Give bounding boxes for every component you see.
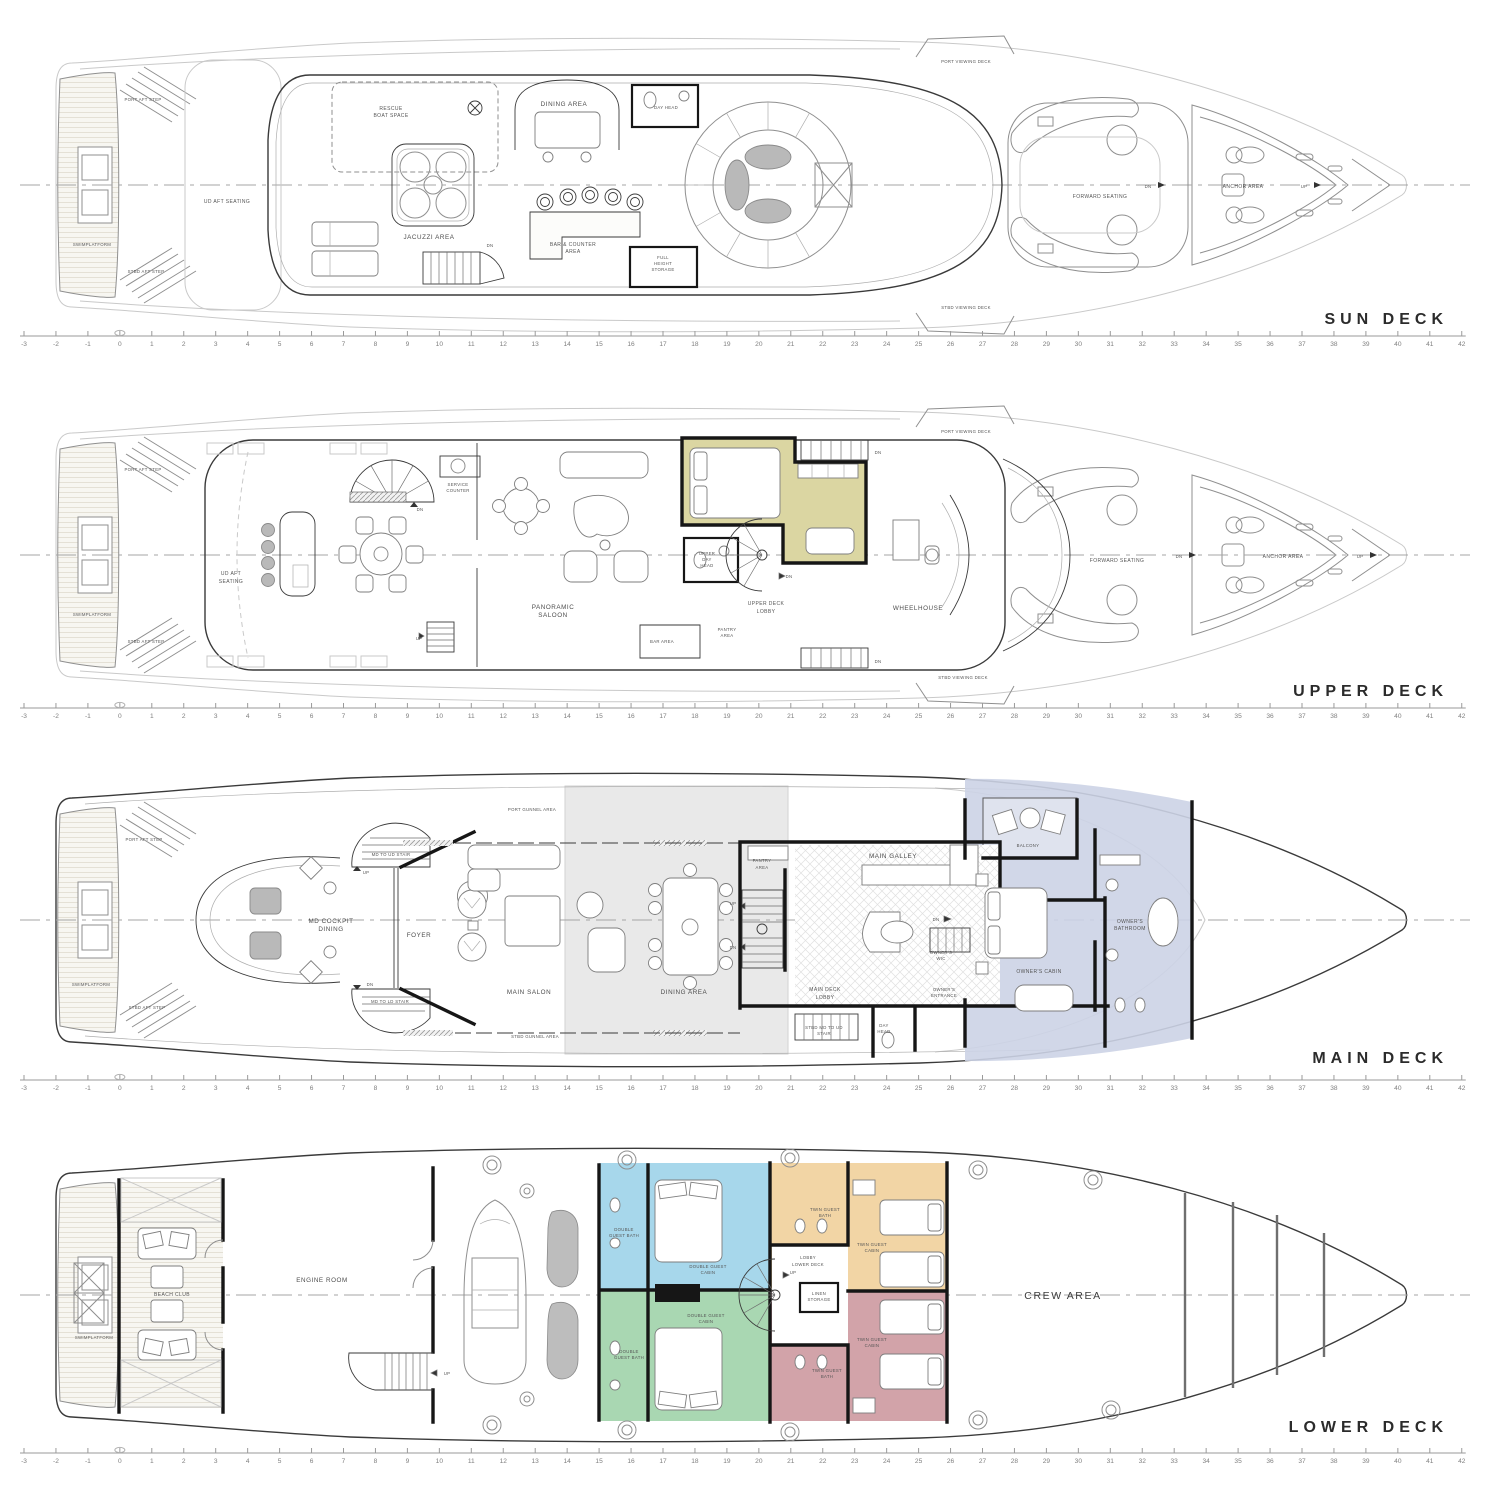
label-upper-deck-lobby-1: UPPER DECK bbox=[748, 601, 785, 607]
label-stbd-gunnel: STBD GUNNEL AREA bbox=[511, 1034, 559, 1039]
label-main-galley: MAIN GALLEY bbox=[869, 853, 917, 860]
sun-stairs-dn bbox=[423, 252, 504, 284]
ruler-number: 40 bbox=[1394, 1085, 1402, 1092]
sun-deck-plan: PORT AFT STEP SWIMPLATFORM STBD AFT STEP… bbox=[20, 36, 1470, 334]
label-up-aft: UP bbox=[363, 870, 370, 875]
main-deck-plan: PORT AFT STEP SWIMPLATFORM STBD AFT STEP… bbox=[20, 773, 1470, 1067]
ruler-number: 15 bbox=[595, 1458, 603, 1465]
label-stbd-aft-step: STBD AFT STEP bbox=[129, 1005, 166, 1010]
label-dn-aft: DN bbox=[367, 982, 374, 987]
label-stbd-viewing-deck: STBD VIEWING DECK bbox=[938, 675, 988, 680]
label-upper-deck-lobby-2: LOBBY bbox=[757, 609, 776, 615]
ruler-number: 25 bbox=[915, 1458, 923, 1465]
ruler-number: 19 bbox=[723, 713, 731, 720]
ruler-number: 28 bbox=[1011, 1085, 1019, 1092]
ruler-number: 12 bbox=[500, 1458, 508, 1465]
ruler-number: 28 bbox=[1011, 1458, 1019, 1465]
ruler-number: 20 bbox=[755, 1458, 763, 1465]
engine-room-stair bbox=[349, 1353, 437, 1390]
ruler-number: 15 bbox=[595, 341, 603, 348]
ruler-number: 0 bbox=[118, 341, 122, 348]
ruler-number: 36 bbox=[1266, 713, 1274, 720]
label-bow-up: UP bbox=[1357, 554, 1364, 559]
ruler-number: -2 bbox=[53, 713, 59, 720]
ruler-number: -2 bbox=[53, 341, 59, 348]
crane-icon bbox=[468, 101, 482, 115]
ruler-number: 25 bbox=[915, 1085, 923, 1092]
label-up: UP bbox=[1301, 184, 1308, 189]
label-full-height-3: STORAGE bbox=[651, 267, 674, 272]
ruler-number: 30 bbox=[1075, 341, 1083, 348]
ud-up-stair bbox=[419, 622, 454, 652]
ruler-number: 24 bbox=[883, 713, 891, 720]
ud-stair-dn bbox=[350, 460, 434, 507]
ruler-number: 5 bbox=[278, 1458, 282, 1465]
ruler-number: 31 bbox=[1107, 1458, 1115, 1465]
ruler-number: 36 bbox=[1266, 1085, 1274, 1092]
lower-lobby bbox=[772, 1245, 848, 1345]
ruler-number: 19 bbox=[723, 1458, 731, 1465]
ruler-number: -1 bbox=[85, 713, 91, 720]
ruler-number: -3 bbox=[21, 341, 27, 348]
ruler-number: 13 bbox=[532, 1085, 540, 1092]
ruler-number: 41 bbox=[1426, 341, 1434, 348]
ruler-number: 21 bbox=[787, 1085, 795, 1092]
label-twin-cabin-red-2: CABIN bbox=[865, 1343, 880, 1348]
ruler-number: 33 bbox=[1171, 713, 1179, 720]
scale-ruler-upper: -3-2-10123456789101112131415161718192021… bbox=[20, 702, 1466, 720]
ruler-number: 8 bbox=[374, 1085, 378, 1092]
label-dn-galley: DN bbox=[933, 917, 940, 922]
ruler-number: 41 bbox=[1426, 1458, 1434, 1465]
ruler-number: 7 bbox=[342, 713, 346, 720]
label-anchor-area: ANCHOR AREA bbox=[1223, 184, 1264, 190]
label-lobby-ld-2: LOWER DECK bbox=[792, 1262, 824, 1267]
ruler-number: 17 bbox=[659, 713, 667, 720]
ud-aft-bar bbox=[262, 512, 316, 596]
ruler-number: 22 bbox=[819, 713, 827, 720]
label-swimplatform: SWIMPLATFORM bbox=[75, 1335, 113, 1340]
label-md-cockpit-2: DINING bbox=[318, 926, 343, 933]
scale-ruler-sun: -3-2-10123456789101112131415161718192021… bbox=[20, 330, 1466, 348]
label-twin-bath-tan-1: TWIN GUEST bbox=[810, 1207, 840, 1212]
ruler-number: 34 bbox=[1202, 341, 1210, 348]
ruler-number: 21 bbox=[787, 1458, 795, 1465]
label-panoramic-saloon-2: SALOON bbox=[538, 612, 568, 619]
ruler-number: 40 bbox=[1394, 1458, 1402, 1465]
ruler-number: 13 bbox=[532, 1458, 540, 1465]
label-full-height-1: FULL bbox=[657, 255, 669, 260]
label-anchor-area: ANCHOR AREA bbox=[1263, 554, 1304, 560]
ruler-number: 10 bbox=[436, 341, 444, 348]
ruler-number: 23 bbox=[851, 1085, 859, 1092]
ruler-number: 20 bbox=[755, 713, 763, 720]
label-linen-2: STORAGE bbox=[807, 1297, 830, 1302]
ruler-number: 12 bbox=[500, 713, 508, 720]
label-service-counter-2: COUNTER bbox=[446, 488, 469, 493]
ruler-number: 23 bbox=[851, 1458, 859, 1465]
ruler-number: 39 bbox=[1362, 713, 1370, 720]
scale-ruler-main: -3-2-10123456789101112131415161718192021… bbox=[20, 1074, 1466, 1092]
ruler-number: 15 bbox=[595, 1085, 603, 1092]
ruler-number: 8 bbox=[374, 1458, 378, 1465]
ruler-number: 7 bbox=[342, 341, 346, 348]
ruler-number: 6 bbox=[310, 713, 314, 720]
label-twin-bath-red-2: BATH bbox=[821, 1374, 833, 1379]
ruler-number: 34 bbox=[1202, 1085, 1210, 1092]
ruler-number: 20 bbox=[755, 1085, 763, 1092]
label-day-head-1: DAY bbox=[879, 1023, 888, 1028]
ruler-number: 18 bbox=[691, 341, 699, 348]
ruler-number: -1 bbox=[85, 1458, 91, 1465]
ruler-number: 9 bbox=[406, 1458, 410, 1465]
ruler-number: 32 bbox=[1139, 341, 1147, 348]
label-dining-area: DINING AREA bbox=[541, 101, 588, 108]
ruler-number: 21 bbox=[787, 713, 795, 720]
label-owners-entrance-1: OWNER'S bbox=[933, 987, 955, 992]
ruler-number: 22 bbox=[819, 1458, 827, 1465]
ruler-number: 16 bbox=[627, 1458, 635, 1465]
ruler-number: 0 bbox=[118, 713, 122, 720]
label-beach-club: BEACH CLUB bbox=[154, 1292, 190, 1298]
label-stbd-stair-2: STAIR bbox=[817, 1031, 831, 1036]
ruler-number: 21 bbox=[787, 341, 795, 348]
ruler-number: 17 bbox=[659, 1458, 667, 1465]
label-forward-seating: FORWARD SEATING bbox=[1073, 194, 1128, 200]
label-bar-counter-1: BAR & COUNTER bbox=[550, 242, 596, 248]
label-pantry-area-2: AREA bbox=[721, 633, 734, 638]
ruler-number: 14 bbox=[563, 341, 571, 348]
label-main-salon: MAIN SALON bbox=[507, 989, 551, 996]
ruler-number: 2 bbox=[182, 341, 186, 348]
ruler-number: 12 bbox=[500, 1085, 508, 1092]
label-up-mid: UP bbox=[730, 901, 737, 906]
ruler-number: 14 bbox=[563, 713, 571, 720]
ruler-number: 33 bbox=[1171, 341, 1179, 348]
label-stair-dn: DN bbox=[417, 507, 424, 512]
label-day-head: DAY HEAD bbox=[654, 105, 678, 110]
ruler-number: 26 bbox=[947, 341, 955, 348]
ruler-number: 13 bbox=[532, 713, 540, 720]
label-owners-wic-2: WIC bbox=[936, 956, 945, 961]
ruler-number: 6 bbox=[310, 1085, 314, 1092]
ruler-number: 10 bbox=[436, 1085, 444, 1092]
label-spiral-dn: DN bbox=[786, 574, 793, 579]
label-ud-aft-seating-1: UD AFT bbox=[221, 571, 241, 577]
label-twin-cabin-red-1: TWIN GUEST bbox=[857, 1337, 887, 1342]
ruler-number: 19 bbox=[723, 1085, 731, 1092]
ruler-number: 4 bbox=[246, 1085, 250, 1092]
captain-cabin bbox=[682, 438, 866, 563]
ruler-number: 37 bbox=[1298, 1085, 1306, 1092]
ruler-number: 2 bbox=[182, 713, 186, 720]
label-dbl-cabin-green-1: DOUBLE GUEST bbox=[687, 1313, 724, 1318]
ruler-number: 38 bbox=[1330, 341, 1338, 348]
ruler-number: 29 bbox=[1043, 713, 1051, 720]
label-owners-cabin: OWNER'S CABIN bbox=[1016, 969, 1061, 975]
ruler-number: 28 bbox=[1011, 341, 1019, 348]
ruler-number: 30 bbox=[1075, 1085, 1083, 1092]
ruler-number: 9 bbox=[406, 341, 410, 348]
ruler-number: 29 bbox=[1043, 1085, 1051, 1092]
label-balcony: BALCONY bbox=[1017, 843, 1040, 848]
ruler-number: -1 bbox=[85, 1085, 91, 1092]
ruler-number: 16 bbox=[627, 1085, 635, 1092]
ruler-number: 5 bbox=[278, 341, 282, 348]
label-dbl-cabin-blue-2: CABIN bbox=[701, 1270, 716, 1275]
ruler-number: 39 bbox=[1362, 1085, 1370, 1092]
ruler-number: 35 bbox=[1234, 1085, 1242, 1092]
ruler-number: 32 bbox=[1139, 713, 1147, 720]
label-twin-bath-tan-2: BATH bbox=[819, 1213, 831, 1218]
ruler-number: 14 bbox=[563, 1458, 571, 1465]
ruler-number: 1 bbox=[150, 341, 154, 348]
label-pantry-2: AREA bbox=[756, 865, 769, 870]
ga-plan-sheet: PORT AFT STEP SWIMPLATFORM STBD AFT STEP… bbox=[0, 0, 1500, 1494]
ruler-number: 18 bbox=[691, 713, 699, 720]
ruler-number: 10 bbox=[436, 713, 444, 720]
ruler-number: 3 bbox=[214, 1458, 218, 1465]
ruler-number: 3 bbox=[214, 341, 218, 348]
label-pantry-area-1: PANTRY bbox=[718, 627, 737, 632]
ruler-number: 10 bbox=[436, 1458, 444, 1465]
label-dn-mid: DN bbox=[730, 945, 737, 950]
ruler-number: 30 bbox=[1075, 713, 1083, 720]
ruler-number: 7 bbox=[342, 1458, 346, 1465]
label-stbd-stair-1: STBD MD TO UD bbox=[805, 1025, 843, 1030]
ruler-number: 39 bbox=[1362, 341, 1370, 348]
deck-title-sun: SUN DECK bbox=[1324, 311, 1448, 328]
deck-plan-canvas: PORT AFT STEP SWIMPLATFORM STBD AFT STEP… bbox=[0, 0, 1500, 1494]
wall-block bbox=[655, 1284, 700, 1302]
label-engine-room: ENGINE ROOM bbox=[296, 1277, 348, 1284]
foyer-chairs bbox=[457, 881, 487, 961]
ruler-number: 19 bbox=[723, 341, 731, 348]
label-panoramic-saloon-1: PANORAMIC bbox=[532, 604, 575, 611]
label-port-gunnel: PORT GUNNEL AREA bbox=[508, 807, 556, 812]
ruler-number: 0 bbox=[118, 1085, 122, 1092]
ruler-number: 5 bbox=[278, 713, 282, 720]
label-dbl-bath-blue-1: DOUBLE bbox=[614, 1227, 633, 1232]
ruler-number: 27 bbox=[979, 1458, 987, 1465]
label-dbl-bath-blue-2: GUEST BATH bbox=[609, 1233, 639, 1238]
ruler-number: 6 bbox=[310, 341, 314, 348]
label-md-lobby-1: MAIN DECK bbox=[809, 987, 841, 993]
label-upper-day-head-1: UPPER bbox=[699, 551, 715, 556]
deck-title-lower: LOWER DECK bbox=[1289, 1419, 1448, 1436]
label-owners-bathroom-2: BATHROOM bbox=[1114, 926, 1146, 932]
ruler-number: 9 bbox=[406, 713, 410, 720]
ruler-number: 34 bbox=[1202, 713, 1210, 720]
ruler-number: 4 bbox=[246, 713, 250, 720]
ruler-number: 33 bbox=[1171, 1458, 1179, 1465]
ruler-number: 32 bbox=[1139, 1458, 1147, 1465]
ruler-number: 34 bbox=[1202, 1458, 1210, 1465]
label-port-viewing-deck: PORT VIEWING DECK bbox=[941, 429, 991, 434]
ruler-number: 9 bbox=[406, 1085, 410, 1092]
label-dn: DN bbox=[1145, 184, 1152, 189]
ruler-number: 23 bbox=[851, 341, 859, 348]
ruler-number: 35 bbox=[1234, 341, 1242, 348]
ruler-number: 22 bbox=[819, 1085, 827, 1092]
ruler-number: 41 bbox=[1426, 713, 1434, 720]
ruler-number: 15 bbox=[595, 713, 603, 720]
label-md-lobby-2: LOBBY bbox=[816, 995, 835, 1001]
ruler-number: 35 bbox=[1234, 1458, 1242, 1465]
ruler-number: 31 bbox=[1107, 713, 1115, 720]
ruler-number: 2 bbox=[182, 1458, 186, 1465]
ruler-number: 27 bbox=[979, 1085, 987, 1092]
ruler-number: 13 bbox=[532, 341, 540, 348]
ruler-number: 11 bbox=[468, 341, 475, 348]
label-rescue-boat-1: RESCUE bbox=[379, 106, 403, 112]
label-bar-area: BAR AREA bbox=[650, 639, 674, 644]
label-crew-area: CREW AREA bbox=[1024, 1290, 1101, 1302]
ruler-number: 32 bbox=[1139, 1085, 1147, 1092]
label-ud-aft-seating-2: SEATING bbox=[219, 579, 243, 585]
label-lobby-ld-1: LOBBY bbox=[800, 1255, 816, 1260]
label-side-dn-stbd: DN bbox=[875, 659, 882, 664]
ruler-number: 33 bbox=[1171, 1085, 1179, 1092]
ruler-number: -1 bbox=[85, 341, 91, 348]
ruler-number: 24 bbox=[883, 341, 891, 348]
ud-dining-table bbox=[339, 517, 423, 592]
label-twin-cabin-tan-1: TWIN GUEST bbox=[857, 1242, 887, 1247]
ruler-number: -3 bbox=[21, 1085, 27, 1092]
label-rescue-boat-2: BOAT SPACE bbox=[373, 113, 408, 119]
ruler-number: 14 bbox=[563, 1085, 571, 1092]
saloon-furniture bbox=[493, 452, 649, 582]
label-foyer: FOYER bbox=[407, 932, 431, 939]
label-md-cockpit-1: MD COCKPIT bbox=[308, 918, 353, 925]
ruler-number: 17 bbox=[659, 1085, 667, 1092]
label-bow-dn: DN bbox=[1176, 554, 1183, 559]
ruler-number: 25 bbox=[915, 713, 923, 720]
ruler-number: 18 bbox=[691, 1458, 699, 1465]
label-up-lobby: UP bbox=[790, 1270, 797, 1275]
ruler-number: 37 bbox=[1298, 1458, 1306, 1465]
label-service-counter-1: SERVICE bbox=[448, 482, 469, 487]
ruler-number: 1 bbox=[150, 713, 154, 720]
deck-title-upper: UPPER DECK bbox=[1293, 683, 1448, 700]
ruler-number: 30 bbox=[1075, 1458, 1083, 1465]
ruler-number: 42 bbox=[1458, 1085, 1466, 1092]
ruler-number: 12 bbox=[500, 341, 508, 348]
ruler-number: -2 bbox=[53, 1085, 59, 1092]
label-up-stair: UP bbox=[416, 636, 423, 641]
ruler-number: 31 bbox=[1107, 341, 1115, 348]
ruler-number: 7 bbox=[342, 1085, 346, 1092]
ruler-number: 36 bbox=[1266, 1458, 1274, 1465]
label-stbd-aft-step: STBD AFT STEP bbox=[128, 269, 165, 274]
ruler-number: 2 bbox=[182, 1085, 186, 1092]
label-md-ud-stair: MD TO UD STAIR bbox=[372, 852, 411, 857]
scale-ruler-lower: -3-2-10123456789101112131415161718192021… bbox=[20, 1447, 1466, 1465]
ruler-number: 38 bbox=[1330, 713, 1338, 720]
label-stbd-viewing-deck: STBD VIEWING DECK bbox=[941, 305, 991, 310]
ruler-number: 28 bbox=[1011, 713, 1019, 720]
label-dining-area: DINING AREA bbox=[661, 989, 708, 996]
sun-bar bbox=[530, 187, 643, 259]
label-owners-bathroom-1: OWNER'S bbox=[1117, 919, 1144, 925]
label-port-aft-step: PORT AFT STEP bbox=[124, 467, 161, 472]
ruler-number: 5 bbox=[278, 1085, 282, 1092]
ruler-number: 27 bbox=[979, 341, 987, 348]
label-bar-counter-2: AREA bbox=[565, 249, 580, 255]
ruler-number: 17 bbox=[659, 341, 667, 348]
ruler-number: 38 bbox=[1330, 1458, 1338, 1465]
label-dbl-cabin-green-2: CABIN bbox=[699, 1319, 714, 1324]
ruler-number: 31 bbox=[1107, 1085, 1115, 1092]
ruler-number: -3 bbox=[21, 713, 27, 720]
ruler-number: 8 bbox=[374, 713, 378, 720]
ruler-number: 36 bbox=[1266, 341, 1274, 348]
ruler-number: 11 bbox=[468, 1085, 475, 1092]
label-port-viewing-deck: PORT VIEWING DECK bbox=[941, 59, 991, 64]
ruler-number: 4 bbox=[246, 341, 250, 348]
label-md-ld-stair: MD TO LD STAIR bbox=[371, 999, 409, 1004]
label-up-stair: UP bbox=[444, 1371, 451, 1376]
ruler-number: 11 bbox=[468, 713, 475, 720]
ruler-number: 20 bbox=[755, 341, 763, 348]
label-dbl-bath-green-1: DOUBLE bbox=[619, 1349, 638, 1354]
ruler-number: 29 bbox=[1043, 1458, 1051, 1465]
label-swimplatform: SWIMPLATFORM bbox=[73, 242, 111, 247]
ruler-number: 39 bbox=[1362, 1458, 1370, 1465]
ruler-number: 16 bbox=[627, 713, 635, 720]
ruler-number: -2 bbox=[53, 1458, 59, 1465]
ruler-number: 0 bbox=[118, 1458, 122, 1465]
label-twin-cabin-tan-2: CABIN bbox=[865, 1248, 880, 1253]
label-linen-1: LINEN bbox=[812, 1291, 826, 1296]
upper-deck-plan: PORT AFT STEP SWIMPLATFORM STBD AFT STEP… bbox=[20, 406, 1470, 704]
ruler-number: 40 bbox=[1394, 341, 1402, 348]
label-ud-aft-seating: UD AFT SEATING bbox=[204, 199, 250, 205]
ruler-number: 42 bbox=[1458, 1458, 1466, 1465]
label-pantry-1: PANTRY bbox=[753, 858, 772, 863]
ruler-number: 1 bbox=[150, 1458, 154, 1465]
ruler-number: 3 bbox=[214, 713, 218, 720]
ruler-number: 23 bbox=[851, 713, 859, 720]
ruler-number: 38 bbox=[1330, 1085, 1338, 1092]
label-day-head-2: HEAD bbox=[877, 1029, 890, 1034]
ruler-number: 24 bbox=[883, 1458, 891, 1465]
ruler-number: 37 bbox=[1298, 713, 1306, 720]
ruler-number: 16 bbox=[627, 341, 635, 348]
ruler-number: 42 bbox=[1458, 341, 1466, 348]
label-upper-day-head-2: DAY bbox=[702, 557, 711, 562]
label-swimplatform: SWIMPLATFORM bbox=[73, 612, 111, 617]
ruler-number: 35 bbox=[1234, 713, 1242, 720]
ruler-number: 26 bbox=[947, 1458, 955, 1465]
deck-title-main: MAIN DECK bbox=[1312, 1050, 1448, 1067]
ruler-number: 6 bbox=[310, 1458, 314, 1465]
label-stair-dn: DN bbox=[487, 243, 494, 248]
label-wheelhouse: WHEELHOUSE bbox=[893, 605, 943, 612]
label-upper-day-head-3: HEAD bbox=[700, 563, 713, 568]
label-owners-entrance-2: ENTRANCE bbox=[931, 993, 957, 998]
ruler-number: 22 bbox=[819, 341, 827, 348]
label-owners-wic-1: OWNER'S bbox=[930, 950, 952, 955]
ruler-number: 11 bbox=[468, 1458, 475, 1465]
ruler-number: 26 bbox=[947, 1085, 955, 1092]
ruler-number: 1 bbox=[150, 1085, 154, 1092]
ruler-number: 24 bbox=[883, 1085, 891, 1092]
label-twin-bath-red-1: TWIN GUEST bbox=[812, 1368, 842, 1373]
label-port-aft-step: PORT AFT STEP bbox=[124, 97, 161, 102]
ruler-number: 42 bbox=[1458, 713, 1466, 720]
ruler-number: 27 bbox=[979, 713, 987, 720]
